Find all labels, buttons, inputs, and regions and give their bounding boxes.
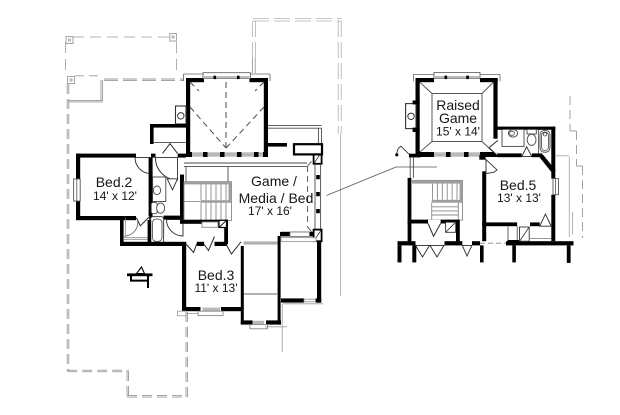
svg-text:Bed.2: Bed.2 (96, 174, 133, 190)
svg-text:13' x 13': 13' x 13' (497, 191, 541, 205)
svg-text:14' x 12': 14' x 12' (93, 189, 137, 203)
svg-text:Game /: Game / (251, 173, 297, 189)
svg-text:17' x 16': 17' x 16' (248, 204, 292, 218)
svg-text:15' x 14': 15' x 14' (436, 125, 480, 139)
svg-text:11' x 13': 11' x 13' (194, 281, 237, 295)
